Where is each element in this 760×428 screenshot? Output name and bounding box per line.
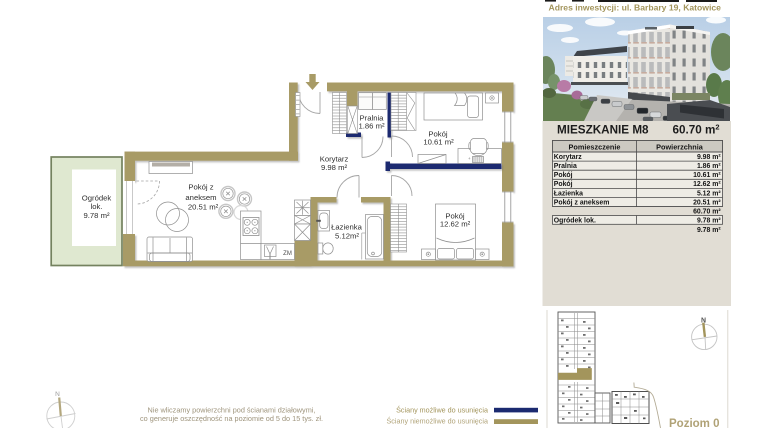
svg-text:Pokój: Pokój [554, 181, 573, 188]
svg-text:N: N [55, 391, 60, 398]
svg-text:Korytarz: Korytarz [320, 154, 349, 163]
svg-text:10.61 m²: 10.61 m² [423, 138, 454, 147]
svg-text:9.78 m²: 9.78 m² [697, 217, 721, 224]
svg-text:Pokój z: Pokój z [188, 182, 213, 191]
svg-text:Poziom 0: Poziom 0 [669, 418, 719, 428]
svg-text:20.51 m²: 20.51 m² [188, 203, 219, 212]
svg-text:60.70 m²: 60.70 m² [693, 208, 721, 215]
svg-text:MIESZKANIE M8: MIESZKANIE M8 [557, 124, 649, 137]
svg-text:9.98 m²: 9.98 m² [321, 163, 348, 172]
svg-text:Pomieszczenie: Pomieszczenie [569, 143, 621, 152]
svg-text:Pokój: Pokój [554, 172, 573, 179]
svg-text:Pokój z aneksem: Pokój z aneksem [554, 199, 610, 206]
svg-text:Pralnia: Pralnia [554, 163, 577, 170]
svg-text:Ściany niemożliwe do usunięcia: Ściany niemożliwe do usunięcia [387, 416, 488, 425]
svg-text:Ogródek: Ogródek [82, 193, 112, 202]
svg-text:12.62 m²: 12.62 m² [693, 181, 721, 188]
svg-text:Łazienka: Łazienka [331, 223, 362, 232]
svg-text:9.78 m²: 9.78 m² [83, 211, 110, 220]
svg-text:+: + [468, 156, 471, 161]
svg-text:co generuje oszczędność na poz: co generuje oszczędność na poziomie od 5… [140, 414, 323, 423]
svg-text:Łazienka: Łazienka [554, 190, 583, 197]
svg-text:Ściany możliwe do usunięcia: Ściany możliwe do usunięcia [396, 405, 488, 414]
svg-text:N: N [701, 318, 706, 325]
svg-text:1.86 m²: 1.86 m² [697, 163, 721, 170]
svg-text:20.51 m²: 20.51 m² [693, 199, 721, 206]
svg-text:9.98 m²: 9.98 m² [697, 154, 721, 161]
svg-text:Ogródek lok.: Ogródek lok. [554, 217, 596, 224]
svg-text:9.78 m²: 9.78 m² [697, 227, 721, 234]
svg-text:1.86 m²: 1.86 m² [358, 122, 385, 131]
svg-text:10.61 m²: 10.61 m² [693, 172, 721, 179]
svg-text:aneksem: aneksem [185, 193, 216, 202]
svg-text:Adres inwestycji: ul. Barbary: Adres inwestycji: ul. Barbary 19, Katowi… [549, 3, 722, 13]
svg-text:60.70 m2: 60.70 m2 [673, 123, 720, 137]
svg-text:5.12m²: 5.12m² [335, 232, 359, 241]
svg-text:ZM: ZM [283, 251, 292, 257]
svg-text:12.62 m²: 12.62 m² [440, 219, 471, 228]
svg-text:5.12 m²: 5.12 m² [697, 190, 721, 197]
svg-text:Powierzchnia: Powierzchnia [656, 143, 704, 152]
svg-text:Korytarz: Korytarz [554, 154, 583, 161]
